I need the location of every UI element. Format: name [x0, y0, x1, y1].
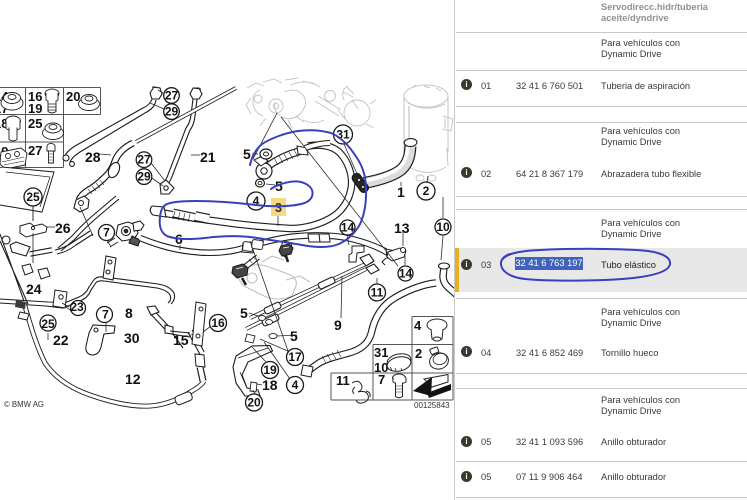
svg-text:16: 16 [211, 316, 225, 330]
svg-text:29: 29 [165, 105, 179, 119]
svg-text:19: 19 [28, 101, 42, 116]
svg-text:23: 23 [70, 300, 84, 314]
svg-text:11: 11 [371, 286, 384, 300]
svg-text:12: 12 [125, 371, 141, 387]
svg-text:15: 15 [173, 332, 189, 348]
svg-text:4: 4 [414, 318, 422, 333]
svg-text:31: 31 [336, 128, 350, 142]
svg-text:25: 25 [41, 317, 55, 331]
svg-text:1: 1 [397, 184, 405, 200]
svg-text:27: 27 [137, 153, 151, 167]
svg-text:14: 14 [341, 221, 355, 235]
svg-text:20: 20 [66, 89, 80, 104]
svg-text:7: 7 [103, 226, 110, 240]
svg-text:25: 25 [26, 190, 40, 204]
svg-text:13: 13 [394, 220, 410, 236]
svg-text:11: 11 [336, 373, 350, 388]
svg-text:19: 19 [263, 363, 277, 377]
svg-text:3: 3 [275, 201, 282, 215]
svg-text:26: 26 [55, 220, 71, 236]
svg-text:28: 28 [85, 149, 101, 165]
svg-text:27: 27 [165, 89, 179, 103]
svg-text:14: 14 [399, 267, 413, 281]
svg-text:30: 30 [124, 330, 140, 346]
svg-text:10: 10 [436, 220, 450, 234]
svg-text:20: 20 [247, 396, 261, 410]
svg-text:© BMW AG: © BMW AG [4, 400, 44, 409]
svg-text:24: 24 [26, 281, 42, 297]
svg-text:2: 2 [415, 346, 422, 361]
svg-text:5: 5 [240, 305, 248, 321]
svg-text:17: 17 [288, 350, 302, 364]
svg-text:2: 2 [423, 184, 430, 198]
svg-text:22: 22 [53, 332, 69, 348]
svg-text:31: 31 [374, 345, 388, 360]
svg-text:21: 21 [200, 149, 216, 165]
svg-text:8: 8 [125, 305, 133, 321]
svg-text:5: 5 [243, 146, 251, 162]
svg-text:4: 4 [292, 378, 299, 392]
svg-text:25: 25 [28, 116, 42, 131]
svg-text:18: 18 [262, 377, 278, 393]
svg-text:7: 7 [102, 308, 109, 322]
svg-text:29: 29 [137, 170, 151, 184]
svg-text:9: 9 [334, 317, 342, 333]
svg-text:27: 27 [28, 143, 42, 158]
svg-text:7: 7 [378, 372, 385, 387]
svg-text:5: 5 [290, 328, 298, 344]
svg-text:00125843: 00125843 [414, 401, 450, 410]
